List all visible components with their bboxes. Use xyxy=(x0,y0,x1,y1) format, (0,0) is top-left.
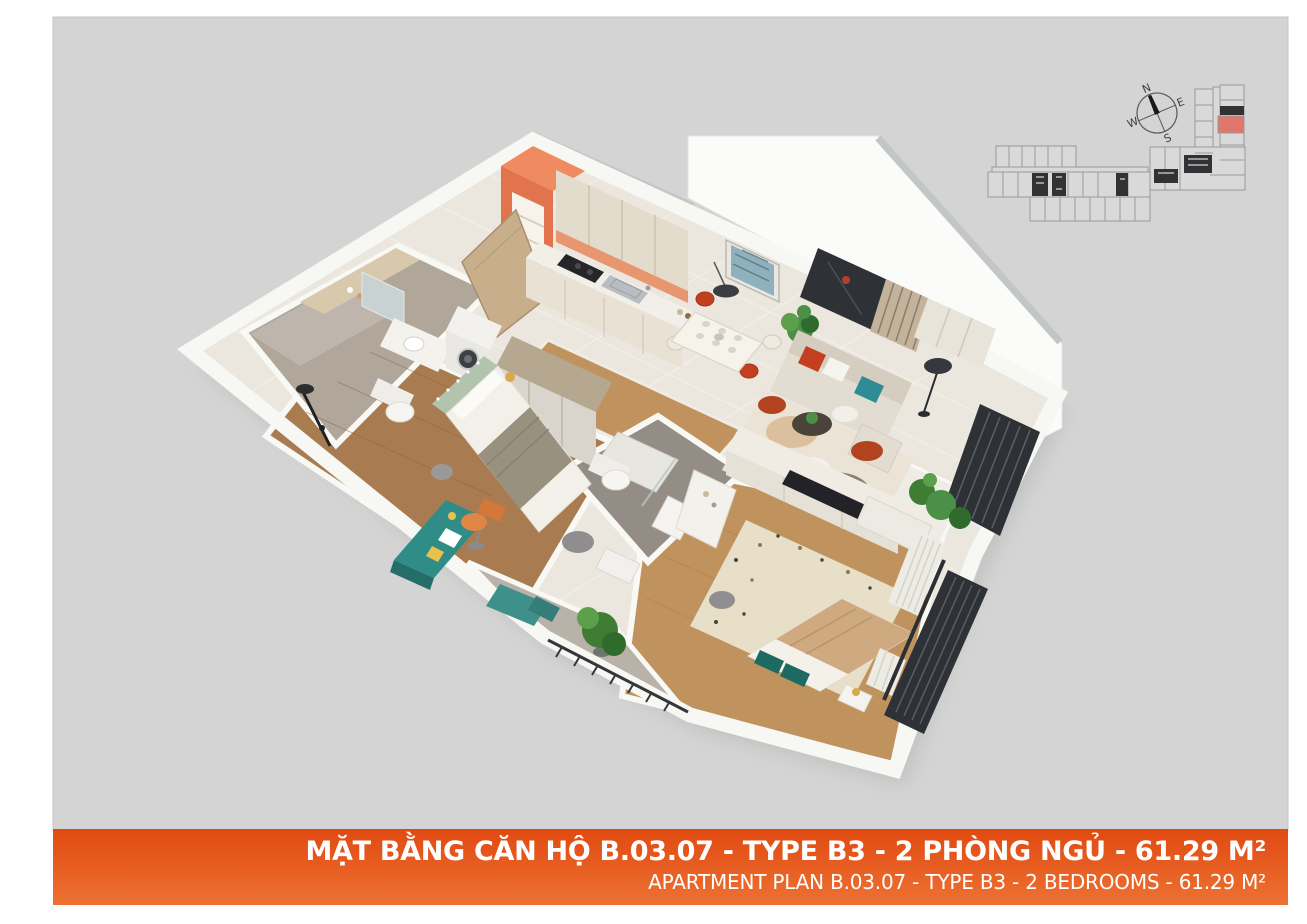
banner-subtitle-en: APARTMENT PLAN B.03.07 - TYPE B3 - 2 BED… xyxy=(53,870,1266,894)
faucet xyxy=(646,286,651,291)
table-lamp xyxy=(505,372,515,382)
highlighted-unit xyxy=(1218,116,1244,133)
banner-title-vi: MẶT BẰNG CĂN HỘ B.03.07 - TYPE B3 - 2 PH… xyxy=(53,836,1266,867)
pendant-lamp xyxy=(713,285,739,298)
floor-plan-scene: N E S W xyxy=(0,0,1307,924)
ottoman xyxy=(851,441,883,461)
side-table xyxy=(832,406,858,422)
banner: MẶT BẰNG CĂN HỘ B.03.07 - TYPE B3 - 2 PH… xyxy=(53,829,1288,905)
pouf xyxy=(431,464,453,480)
vanity-stool xyxy=(709,591,735,609)
dining-chair-red xyxy=(696,292,714,306)
page: N E S W xyxy=(0,0,1307,924)
stool xyxy=(562,531,594,553)
ottoman xyxy=(758,396,786,414)
sink xyxy=(404,337,424,351)
dining-chair-white xyxy=(763,335,781,349)
